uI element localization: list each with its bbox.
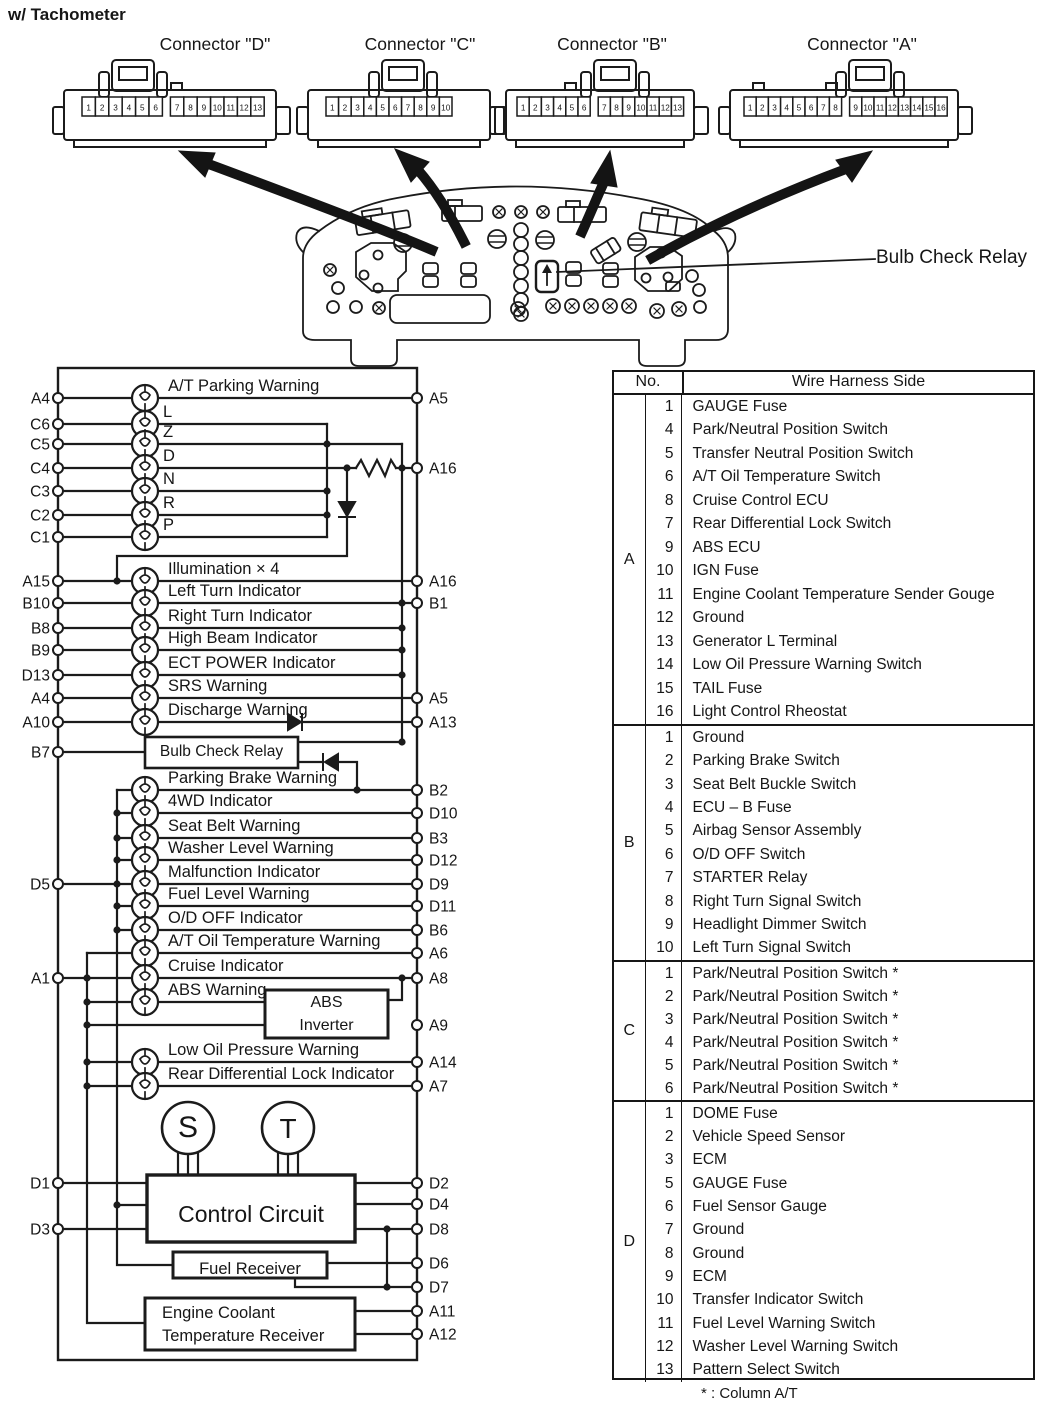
table-row: 4ECU – B Fuse [646,796,1034,819]
indicator-lamp-symbol [132,709,158,735]
circuit-pin-d2 [412,1178,422,1188]
circuit-pin-c2 [53,510,63,520]
circuit-left-pin-label: D13 [22,668,50,685]
table-group-letter: D [614,1102,646,1382]
connector-pin-number: 2 [533,104,538,113]
circuit-right-pin-label: A13 [429,715,457,732]
circuit-left-pin-label: C1 [30,530,50,547]
indicator-lamp-symbol [132,989,158,1015]
junction-dot [323,487,330,494]
circuit-pin-a8 [412,973,422,983]
connector-pin-number: 11 [226,104,235,113]
table-cell-desc: Ground [682,726,1034,749]
circuit-right-pin-label: A9 [429,1018,448,1035]
circuit-left-pin-label: B8 [31,621,50,638]
junction-dot [113,1201,120,1208]
connector-pin-number: 5 [797,104,802,113]
table-row: 1DOME Fuse [646,1102,1034,1125]
circuit-pin-b1 [412,598,422,608]
table-cell-desc: GAUGE Fuse [682,1172,1034,1195]
circuit-pin-a9 [412,1020,422,1030]
table-cell-no: 1 [646,962,682,985]
circuit-right-pin-label: D6 [429,1256,449,1273]
connector-pin-number: 8 [614,104,619,113]
table-row: 16Light Control Rheostat [646,701,1034,725]
circuit-left-pin-label: C3 [30,484,50,501]
circuit-right-pin-label: B2 [429,783,448,800]
table-cell-desc: DOME Fuse [682,1102,1034,1125]
table-cell-no: 12 [646,1335,682,1358]
connector-pin-number: 11 [876,104,885,113]
connector-pin-number: 6 [582,104,587,113]
table-cell-desc: A/T Oil Temperature Switch [682,466,1034,490]
table-row: 3Park/Neutral Position Switch * [646,1008,1034,1031]
table-cell-no: 14 [646,654,682,678]
table-cell-desc: Transfer Indicator Switch [682,1289,1034,1312]
table-cell-desc: IGN Fuse [682,560,1034,584]
connector-pin-number: 3 [545,104,550,113]
table-cell-no: 11 [646,1312,682,1335]
circuit-pin-d8 [412,1224,422,1234]
table-cell-no: 6 [646,1077,682,1100]
circuit-right-pin-label: A8 [429,971,448,988]
table-cell-no: 5 [646,820,682,843]
indicator-lamp-symbol [132,847,158,873]
table-row: 2Vehicle Speed Sensor [646,1125,1034,1148]
junction-dot [113,880,120,887]
connector-pin-number: 15 [924,104,934,113]
bulb-socket [514,265,528,279]
indicator-lamp-label: Malfunction Indicator [168,863,321,881]
bulb-socket [332,282,344,294]
connector-a-label: Connector "A" [782,34,942,55]
indicator-lamp-symbol [132,524,158,550]
circuit-pin-c5 [53,439,63,449]
adjuster-socket [628,233,646,251]
circuit-pin-c4 [53,463,63,473]
circuit-pin-a4 [53,393,63,403]
connector-pin-number: 8 [188,104,193,113]
bulb-check-relay-callout: Bulb Check Relay [876,247,1027,269]
junction-dot [113,902,120,909]
indicator-lamp-label: D [163,447,175,465]
circuit-left-pin-label: B10 [22,596,50,613]
table-cell-no: 7 [646,1219,682,1242]
table-row: 11Fuel Level Warning Switch [646,1312,1034,1335]
table-row: 6Park/Neutral Position Switch * [646,1077,1034,1100]
indicator-lamp-symbol [132,478,158,504]
table-row: 7Rear Differential Lock Switch [646,513,1034,537]
table-row: 6A/T Oil Temperature Switch [646,466,1034,490]
indicator-lamp-label: O/D OFF Indicator [168,909,303,927]
table-cell-desc: Ground [682,607,1034,631]
table-cell-desc: Light Control Rheostat [682,701,1034,725]
table-cell-desc: Park/Neutral Position Switch * [682,1054,1034,1077]
bulb-socket [642,274,651,283]
table-cell-desc: Ground [682,1219,1034,1242]
table-row: 10Transfer Indicator Switch [646,1289,1034,1312]
circuit-left-pin-label: A4 [31,691,50,708]
table-row: 5Airbag Sensor Assembly [646,820,1034,843]
junction-dot [398,671,405,678]
table-cell-desc: Generator L Terminal [682,630,1034,654]
indicator-lamp-label: Discharge Warning [168,701,308,719]
resistor-symbol [356,460,396,476]
table-cell-no: 13 [646,630,682,654]
bulb-socket [686,270,698,282]
table-row: 12Washer Level Warning Switch [646,1335,1034,1358]
table-cell-desc: Left Turn Signal Switch [682,937,1034,960]
table-cell-desc: Vehicle Speed Sensor [682,1125,1034,1148]
table-row: 1Ground [646,726,1034,749]
circuit-pin-d1 [53,1178,63,1188]
junction-dot [323,440,330,447]
junction-dot [398,646,405,653]
circuit-pin-b10 [53,598,63,608]
connector-pin-number: 7 [175,104,180,113]
connector-pin-number: 6 [809,104,814,113]
connector-pin-number: 1 [521,104,526,113]
circuit-pin-c1 [53,532,63,542]
table-cell-no: 7 [646,513,682,537]
circuit-right-pin-label: A11 [429,1304,455,1321]
circuit-left-pin-label: B7 [31,745,50,762]
table-cell-desc: Fuel Level Warning Switch [682,1312,1034,1335]
connector-pin-number: 4 [368,104,373,113]
circuit-pin-d4 [412,1199,422,1209]
indicator-lamp-label: Right Turn Indicator [168,607,312,625]
circuit-right-pin-label: B6 [429,923,448,940]
table-row: 5Transfer Neutral Position Switch [646,442,1034,466]
table-cell-desc: Engine Coolant Temperature Sender Gouge [682,583,1034,607]
table-row: 8Right Turn Signal Switch [646,890,1034,913]
connector-pin-number: 13 [673,104,683,113]
gauge-legs [178,1154,298,1175]
junction-dot [398,738,405,745]
connector-pin-number: 8 [833,104,838,113]
table-cell-desc: Seat Belt Buckle Switch [682,773,1034,796]
table-cell-no: 10 [646,560,682,584]
circuit-right-pin-label: A5 [429,391,448,408]
table-cell-no: 4 [646,419,682,443]
table-cell-no: 8 [646,890,682,913]
connector-pin-number: 2 [100,104,105,113]
ect-receiver-label-line2: Temperature Receiver [162,1327,324,1346]
connector-arrows [179,149,872,258]
indicator-lamp-symbol [132,965,158,991]
connector-pin-number: 4 [784,104,789,113]
table-cell-desc: Park/Neutral Position Switch [682,419,1034,443]
tachometer-wiring-diagram-page: 1234567891011121312345678910123456789101… [0,0,1040,1409]
connector-pin-number: 12 [888,104,898,113]
indicator-lamp-label: ABS Warning [168,981,266,999]
table-row: 2Parking Brake Switch [646,749,1034,772]
junction-dot [83,1082,90,1089]
indicator-lamp-label: 4WD Indicator [168,792,273,810]
table-cell-no: 9 [646,536,682,560]
table-row: 9Headlight Dimmer Switch [646,913,1034,936]
circuit-pin-d3 [53,1224,63,1234]
indicator-lamp-label: A/T Oil Temperature Warning [168,932,380,950]
table-cell-no: 15 [646,677,682,701]
indicator-lamp-label: R [163,494,175,512]
table-group-letter: C [614,962,646,1100]
table-cell-desc: Washer Level Warning Switch [682,1335,1034,1358]
connector-pin-number: 14 [912,104,922,113]
ect-receiver-label-line1: Engine Coolant [162,1304,275,1323]
table-cell-no: 6 [646,1195,682,1218]
connector-pin-number: 10 [863,104,873,113]
junction-dot [113,926,120,933]
indicator-lamp-label: Fuel Level Warning [168,885,310,903]
table-row: 9ECM [646,1265,1034,1288]
circuit-right-pin-label: D10 [429,806,458,823]
indicator-lamp-symbol [132,1073,158,1099]
circuit-left-pin-label: C4 [30,461,50,478]
table-row: 10Left Turn Signal Switch [646,937,1034,960]
table-header-wire: Wire Harness Side [684,372,1033,393]
circuit-pin-d13 [53,670,63,680]
table-cell-no: 9 [646,913,682,936]
speedometer-letter: S [170,1111,206,1145]
connector-pin-number: 9 [202,104,207,113]
circuit-right-pin-label: A7 [429,1079,448,1096]
circuit-right-pin-label: B1 [429,596,448,613]
table-cell-desc: Transfer Neutral Position Switch [682,442,1034,466]
junction-dot [113,856,120,863]
table-cell-no: 1 [646,1102,682,1125]
connector-pin-number: 12 [661,104,671,113]
table-cell-no: 10 [646,937,682,960]
table-cell-desc: Headlight Dimmer Switch [682,913,1034,936]
table-cell-no: 6 [646,466,682,490]
indicator-lamp-symbol [132,800,158,826]
circuit-left-pin-label: C2 [30,508,50,525]
adjuster-socket [536,231,554,249]
table-cell-no: 4 [646,796,682,819]
connector-pin-number: 1 [748,104,753,113]
table-row: 8Cruise Control ECU [646,489,1034,513]
table-row: 12Ground [646,607,1034,631]
circuit-right-pin-label: D4 [429,1197,449,1214]
connector-pin-number: 4 [127,104,132,113]
table-row: 4Park/Neutral Position Switch * [646,1031,1034,1054]
table-cell-desc: Park/Neutral Position Switch * [682,1077,1034,1100]
circuit-pin-a16 [412,576,422,586]
connector-pin-number: 3 [355,104,360,113]
junction-dot [398,599,405,606]
table-group-letter: A [614,395,646,724]
connector-pin-number: 10 [441,104,451,113]
table-cell-desc: ABS ECU [682,536,1034,560]
circuit-pin-d5 [53,879,63,889]
fuel-receiver-label: Fuel Receiver [173,1260,327,1279]
table-row: 6Fuel Sensor Gauge [646,1195,1034,1218]
table-cell-no: 9 [646,1265,682,1288]
indicator-lamp-label: P [163,516,174,534]
table-cell-no: 10 [646,1289,682,1312]
table-cell-no: 16 [646,701,682,725]
circuit-pin-a13 [412,717,422,727]
junction-dot [383,1283,390,1290]
connector-pin-number: 10 [213,104,223,113]
connector-d-drawing: 12345678910111213 [53,60,290,147]
table-row: 5GAUGE Fuse [646,1172,1034,1195]
circuit-pin-d7 [412,1282,422,1292]
table-cell-desc: Ground [682,1242,1034,1265]
table-row: 3Seat Belt Buckle Switch [646,773,1034,796]
connector-pin-number: 4 [557,104,562,113]
bulb-socket [664,273,673,282]
indicator-lamp-label: Cruise Indicator [168,957,284,975]
connector-pin-number: 6 [153,104,158,113]
bulb-check-relay-part [536,261,558,292]
table-row: 15TAIL Fuse [646,677,1034,701]
circuit-right-pin-label: D12 [429,853,457,870]
connector-pin-number: 6 [393,104,398,113]
connector-pin-number: 5 [140,104,145,113]
table-group-letter: B [614,726,646,960]
table-footnote: * : Column A/T [701,1385,798,1402]
table-cell-desc: STARTER Relay [682,866,1034,889]
table-row: 13Pattern Select Switch [646,1359,1034,1382]
table-cell-desc: Rear Differential Lock Switch [682,513,1034,537]
table-row: 4Park/Neutral Position Switch [646,419,1034,443]
table-row: 9ABS ECU [646,536,1034,560]
table-row: 11Engine Coolant Temperature Sender Goug… [646,583,1034,607]
table-cell-desc: Pattern Select Switch [682,1359,1034,1382]
control-circuit-label: Control Circuit [147,1201,355,1228]
junction-dot [353,786,360,793]
indicator-lamp-symbol [132,431,158,457]
bulb-socket [514,279,528,293]
table-row: 2Park/Neutral Position Switch * [646,985,1034,1008]
table-cell-no: 5 [646,442,682,466]
table-header-no: No. [614,372,684,393]
table-cell-no: 4 [646,1031,682,1054]
table-row: 14Low Oil Pressure Warning Switch [646,654,1034,678]
table-row: 1Park/Neutral Position Switch * [646,962,1034,985]
circuit-left-pin-label: A10 [22,715,50,732]
circuit-right-pin-label: A5 [429,691,448,708]
table-row: 7STARTER Relay [646,866,1034,889]
junction-dot [83,1021,90,1028]
circuit-pin-c3 [53,486,63,496]
indicator-lamp-label: L [163,403,172,421]
circuit-right-pin-label: A14 [429,1055,457,1072]
indicator-lamp-symbol [132,637,158,663]
junction-dot [343,464,350,471]
junction-dot [113,809,120,816]
junction-dot [398,464,405,471]
circuit-pin-a6 [412,948,422,958]
table-group-a: A1GAUGE Fuse4Park/Neutral Position Switc… [614,395,1033,724]
connector-pin-number: 12 [240,104,250,113]
table-cell-no: 6 [646,843,682,866]
bulb-check-relay-box-label: Bulb Check Relay [145,743,298,761]
junction-dot [83,1058,90,1065]
circuit-pin-b3 [412,833,422,843]
connector-pin-number: 1 [330,104,335,113]
table-cell-no: 2 [646,749,682,772]
page-title: w/ Tachometer [8,5,126,25]
connector-pin-number: 5 [380,104,385,113]
circuit-left-pin-label: A15 [22,574,50,591]
connector-pin-number: 13 [900,104,910,113]
connector-pin-number: 8 [418,104,423,113]
circuit-pin-a12 [412,1329,422,1339]
circuit-pin-d12 [412,855,422,865]
circuit-pin-b2 [412,785,422,795]
circuit-right-pin-label: A16 [429,461,457,478]
connector-pin-number: 1 [86,104,91,113]
circuit-right-pin-label: A12 [429,1327,457,1344]
table-row: 13Generator L Terminal [646,630,1034,654]
connector-pin-number: 2 [343,104,348,113]
table-cell-desc: GAUGE Fuse [682,395,1034,419]
indicator-lamp-label: Washer Level Warning [168,839,334,857]
bulb-socket [514,293,528,307]
circuit-pin-d11 [412,901,422,911]
wire-harness-table: No. Wire Harness Side A1GAUGE Fuse4Park/… [612,370,1035,1380]
table-cell-no: 3 [646,1149,682,1172]
table-cell-no: 7 [646,866,682,889]
junction-dot [83,998,90,1005]
indicator-lamp-label: ECT POWER Indicator [168,654,336,672]
connector-pin-number: 11 [649,104,658,113]
table-cell-desc: Right Turn Signal Switch [682,890,1034,913]
bulb-socket [693,284,705,296]
bulb-socket [514,251,528,265]
indicator-lamp-label: Seat Belt Warning [168,817,300,835]
table-cell-desc: ECM [682,1265,1034,1288]
bulb-socket [360,271,369,280]
table-cell-no: 13 [646,1359,682,1382]
circuit-left-pin-label: D5 [30,877,50,894]
table-cell-no: 5 [646,1172,682,1195]
table-row: 6O/D OFF Switch [646,843,1034,866]
circuit-pin-b6 [412,925,422,935]
indicator-lamp-symbol [132,685,158,711]
table-row: 10IGN Fuse [646,560,1034,584]
circuit-pin-b7 [53,747,63,757]
connector-b-label: Connector "B" [532,34,692,55]
table-row: 8Ground [646,1242,1034,1265]
connector-b-drawing: 12345678910111213 [495,60,708,147]
circuit-pin-a7 [412,1081,422,1091]
table-cell-desc: Park/Neutral Position Switch * [682,1008,1034,1031]
connector-pin-number: 7 [406,104,411,113]
connector-pin-number: 7 [821,104,826,113]
indicator-lamp-symbol [132,893,158,919]
table-cell-desc: ECM [682,1149,1034,1172]
table-cell-no: 1 [646,726,682,749]
table-cell-no: 11 [646,583,682,607]
table-cell-no: 12 [646,607,682,631]
table-cell-desc: ECU – B Fuse [682,796,1034,819]
table-row: 5Park/Neutral Position Switch * [646,1054,1034,1077]
indicator-lamp-label: Rear Differential Lock Indicator [168,1065,395,1083]
wire-harness-table-header: No. Wire Harness Side [614,372,1033,395]
circuit-pin-a5 [412,693,422,703]
table-cell-no: 5 [646,1054,682,1077]
table-cell-desc: Park/Neutral Position Switch * [682,1031,1034,1054]
table-cell-desc: Low Oil Pressure Warning Switch [682,654,1034,678]
circuit-right-pin-label: A6 [429,946,448,963]
connector-pin-number: 5 [570,104,575,113]
circuit-left-pin-label: C5 [30,437,50,454]
table-row: 7Ground [646,1219,1034,1242]
